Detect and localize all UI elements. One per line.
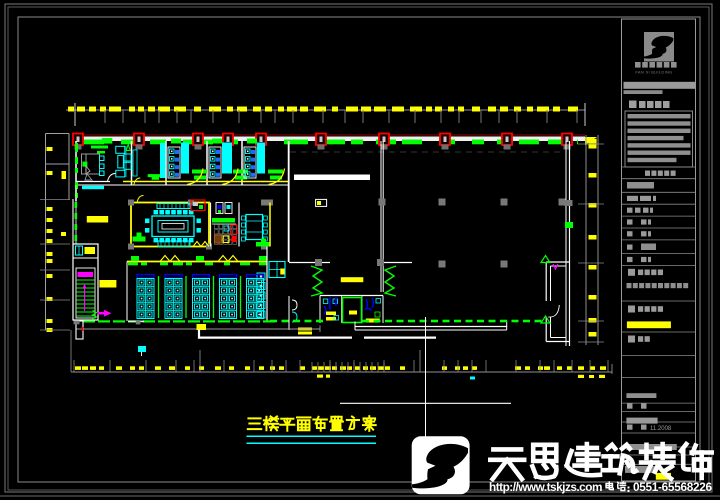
svg-text:11.2008: 11.2008 bbox=[650, 426, 672, 432]
svg-text:0551-65568226: 0551-65568226 bbox=[633, 480, 712, 494]
svg-text:FAN SI BUILDING: FAN SI BUILDING bbox=[635, 70, 672, 75]
svg-text:http://www.tskjzs.com: http://www.tskjzs.com bbox=[489, 480, 602, 494]
